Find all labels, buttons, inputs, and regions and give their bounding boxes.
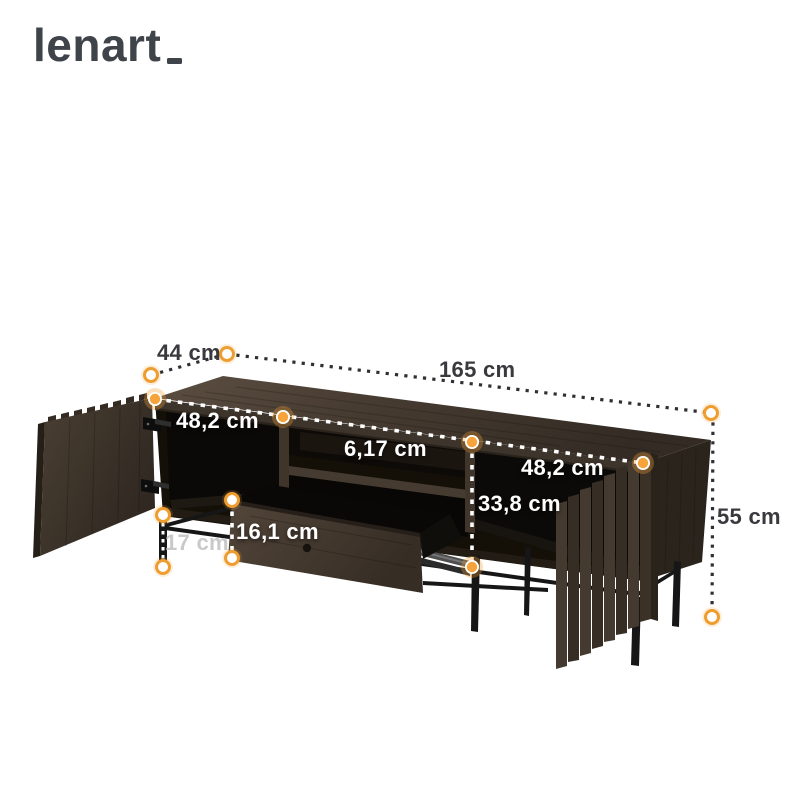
- product-dimension-diagram: 44 cm 165 cm 55 cm 48,2 cm 6,17 cm 48,2 …: [0, 0, 800, 800]
- height-measure-line: [712, 413, 713, 617]
- logo-text: lenart: [33, 22, 161, 68]
- dim-leg-clearance-label: 17 cm: [165, 530, 229, 555]
- brand-logo: lenart: [33, 22, 182, 68]
- dim-left-section-label: 48,2 cm: [176, 408, 259, 433]
- dim-height-label: 55 cm: [717, 504, 781, 529]
- left-door-open: [33, 393, 171, 558]
- dim-width-label: 165 cm: [439, 357, 515, 382]
- dim-right-section-label: 48,2 cm: [521, 455, 604, 480]
- dim-interior-height-label: 33,8 cm: [478, 491, 561, 516]
- furniture-illustration: 44 cm 165 cm 55 cm 48,2 cm 6,17 cm 48,2 …: [0, 0, 800, 800]
- drawer-knob: [303, 544, 311, 552]
- logo-dash: [167, 58, 182, 64]
- tv-stand: [33, 376, 711, 669]
- dim-drawer-front-label: 16,1 cm: [236, 519, 319, 544]
- dim-niche-label: 6,17 cm: [344, 436, 427, 461]
- dim-depth-label: 44 cm: [157, 340, 221, 365]
